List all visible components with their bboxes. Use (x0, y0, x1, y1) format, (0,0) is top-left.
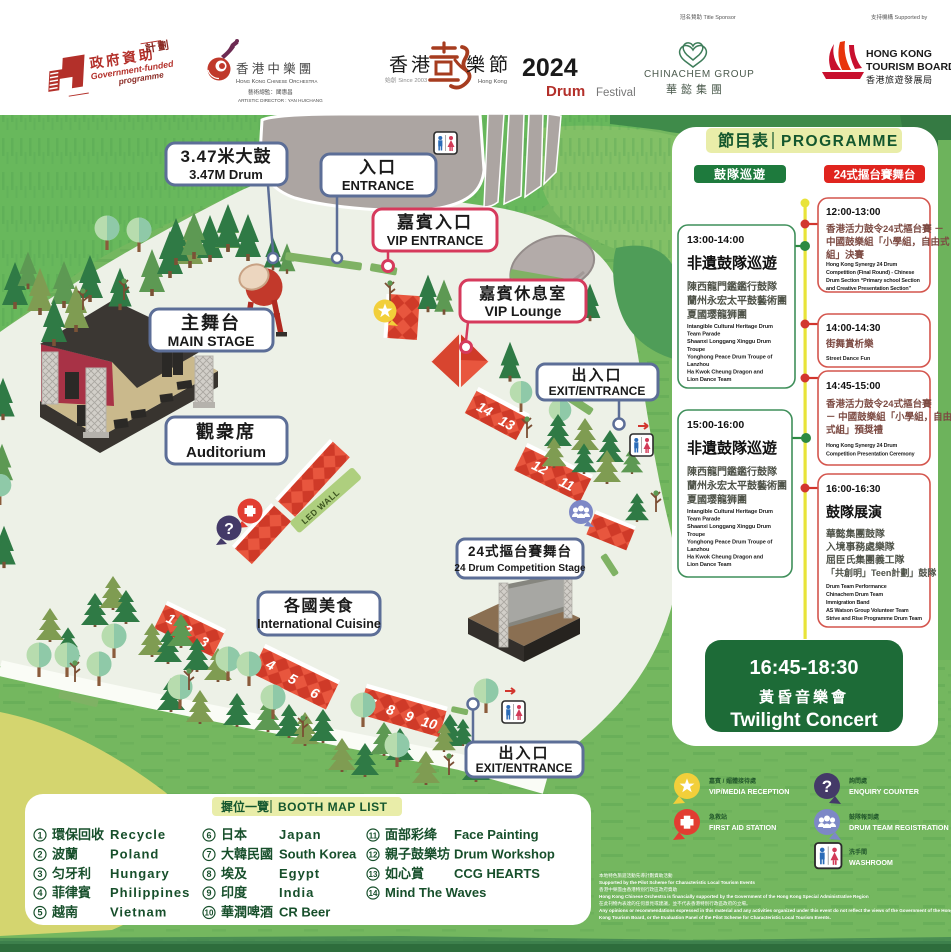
svg-text:24 Drum Competition Stage: 24 Drum Competition Stage (454, 563, 586, 574)
svg-text:Festival: Festival (596, 87, 636, 99)
svg-text:面部彩绛: 面部彩绛 (385, 827, 438, 842)
svg-text:Japan: Japan (279, 827, 322, 842)
svg-text:PROGRAMME: PROGRAMME (781, 133, 899, 150)
svg-text:Competition Presentation Cerem: Competition Presentation Ceremony (826, 452, 915, 458)
svg-text:匀牙利: 匀牙利 (52, 866, 91, 881)
svg-text:「共創明」Teen計劃」鼓隊: 「共創明」Teen計劃」鼓隊 (826, 567, 937, 578)
svg-text:華懿集團: 華懿集團 (666, 82, 726, 96)
svg-text:16:45-18:30: 16:45-18:30 (750, 657, 859, 679)
svg-text:2: 2 (37, 850, 42, 860)
svg-text:出入口: 出入口 (498, 744, 549, 762)
svg-text:洗手間: 洗手間 (849, 848, 867, 856)
svg-text:Drum: Drum (546, 83, 585, 100)
svg-text:TOURISM BOARD: TOURISM BOARD (866, 61, 951, 73)
svg-text:嘉賓 / 媚體接待處: 嘉賓 / 媚體接待處 (708, 777, 756, 785)
svg-text:Lanzhou: Lanzhou (687, 362, 710, 368)
svg-text:VIP Lounge: VIP Lounge (485, 303, 562, 319)
svg-text:3.47M Drum: 3.47M Drum (189, 167, 263, 182)
svg-text:14:00-14:30: 14:00-14:30 (826, 323, 881, 334)
svg-text:Ha Kwok Cheung Dragon and: Ha Kwok Cheung Dragon and (687, 370, 764, 376)
svg-text:Twilight Concert: Twilight Concert (730, 710, 878, 731)
svg-text:VIP ENTRANCE: VIP ENTRANCE (387, 233, 484, 248)
svg-text:本地特色旅遊活動先導計劃資助活動: 本地特色旅遊活動先導計劃資助活動 (599, 872, 673, 879)
svg-text:Drum Workshop: Drum Workshop (454, 847, 555, 862)
svg-text:Team Parade: Team Parade (687, 332, 720, 338)
svg-text:3: 3 (37, 869, 42, 879)
svg-text:15:00-16:00: 15:00-16:00 (687, 419, 744, 431)
svg-text:香港活力鼓令24式摳台賽 －: 香港活力鼓令24式摳台賽 － (825, 223, 944, 235)
svg-text:樂節: 樂節 (466, 54, 512, 76)
svg-text:Yonghong Peace Drum Troupe of: Yonghong Peace Drum Troupe of (687, 539, 772, 545)
svg-text:?: ? (224, 521, 234, 538)
svg-text:大韓民國: 大韓民國 (221, 847, 273, 862)
svg-text:Any opinions or recommendation: Any opinions or recommendations expresse… (599, 908, 951, 913)
svg-text:香港旅遊發展局: 香港旅遊發展局 (866, 74, 933, 85)
svg-text:－ 中國鼓樂組「小學組，自由: － 中國鼓樂組「小學組，自由 (826, 411, 951, 423)
svg-text:環保回收: 環保回收 (52, 827, 105, 842)
svg-text:Lion Dance Team: Lion Dance Team (687, 562, 732, 568)
svg-text:入境事務處樂隊: 入境事務處樂隊 (825, 540, 895, 553)
svg-text:Drum Section “Primary school S: Drum Section “Primary school Section (826, 278, 920, 284)
svg-text:非遺鼓隊巡遊: 非遺鼓隊巡遊 (687, 254, 777, 272)
svg-text:Recycle: Recycle (110, 827, 166, 842)
svg-text:Lion Dance Team: Lion Dance Team (687, 377, 732, 383)
svg-text:13:00-14:00: 13:00-14:00 (687, 234, 744, 246)
svg-text:在此刊物內表達的任何意見或建議，並不代表香港特別行政區政府的: 在此刊物內表達的任何意見或建議，並不代表香港特別行政區政府的立場。 (599, 900, 751, 907)
svg-text:14:45-15:00: 14:45-15:00 (826, 381, 881, 392)
svg-text:入口: 入口 (359, 158, 397, 177)
svg-text:VIP/MEDIA RECEPTION: VIP/MEDIA RECEPTION (709, 787, 789, 796)
svg-text:CCG HEARTS: CCG HEARTS (454, 866, 540, 881)
svg-text:陳西龍門鑑鑑行鼓隊: 陳西龍門鑑鑑行鼓隊 (687, 280, 778, 293)
svg-text:急救站: 急救站 (709, 813, 727, 821)
svg-text:?: ? (822, 777, 832, 796)
svg-text:Shaanxi Longgang Xinggu Drum: Shaanxi Longgang Xinggu Drum (687, 524, 771, 530)
svg-text:BOOTH MAP LIST: BOOTH MAP LIST (278, 800, 388, 814)
svg-text:Hong Kong Chinese Orchestra is: Hong Kong Chinese Orchestra is financial… (599, 894, 869, 899)
svg-text:WASHROOM: WASHROOM (849, 858, 893, 867)
svg-text:Team Parade: Team Parade (687, 517, 720, 523)
svg-text:12:00-13:00: 12:00-13:00 (826, 207, 881, 218)
svg-text:ARTISTIC DIRECTOR : YAN HUICHA: ARTISTIC DIRECTOR : YAN HUICHANG (238, 98, 323, 103)
svg-text:始創 Since 2003: 始創 Since 2003 (385, 76, 427, 84)
svg-text:14: 14 (369, 889, 378, 898)
svg-text:EXIT/ENTRANCE: EXIT/ENTRANCE (476, 761, 573, 775)
svg-text:Drum Team Performance: Drum Team Performance (826, 584, 887, 590)
svg-text:藝術總監：閶惠昌: 藝術總監：閶惠昌 (248, 88, 293, 96)
svg-text:Intangible Cultural Heritage D: Intangible Cultural Heritage Drum (687, 509, 773, 515)
svg-text:11: 11 (369, 832, 378, 841)
svg-text:如心賞: 如心賞 (385, 866, 424, 881)
svg-text:香港中樂團: 香港中樂團 (236, 61, 315, 76)
svg-text:Shaanxi Longgang Xinggu Drum: Shaanxi Longgang Xinggu Drum (687, 339, 771, 345)
svg-text:Kong Tourism Board, or the Eva: Kong Tourism Board, or the Evaluation Pa… (599, 915, 831, 920)
svg-text:2024: 2024 (522, 54, 578, 82)
svg-text:24式摳台賽舞台: 24式摳台賽舞台 (468, 543, 572, 559)
svg-text:4: 4 (37, 888, 42, 898)
svg-text:蘭州永宏太平鼓藝術團: 蘭州永宏太平鼓藝術團 (687, 479, 787, 492)
svg-text:ENQUIRY COUNTER: ENQUIRY COUNTER (849, 787, 920, 796)
svg-text:香港: 香港 (389, 54, 433, 76)
svg-text:Chinachem Drum Team: Chinachem Drum Team (826, 592, 883, 598)
svg-text:Lanzhou: Lanzhou (687, 547, 710, 553)
svg-text:各國美食: 各國美食 (283, 596, 354, 615)
svg-text:節目表: 節目表 (717, 131, 769, 150)
svg-text:3.47米大鼓: 3.47米大鼓 (180, 146, 271, 166)
svg-text:出入口: 出入口 (571, 366, 622, 384)
svg-text:Philippines: Philippines (110, 885, 190, 900)
svg-text:印度: 印度 (221, 885, 248, 900)
svg-text:DRUM TEAM REGISTRATION: DRUM TEAM REGISTRATION (849, 823, 949, 832)
svg-text:華懿集團鼓隊: 華懿集團鼓隊 (826, 527, 885, 540)
svg-text:Hong Kong: Hong Kong (478, 79, 507, 85)
svg-text:Troupe: Troupe (687, 532, 705, 538)
svg-text:FIRST AID STATION: FIRST AID STATION (709, 823, 776, 832)
svg-text:MAIN STAGE: MAIN STAGE (168, 333, 255, 349)
svg-text:鼓隊報到處: 鼓隊報到處 (849, 813, 879, 821)
svg-text:香港中樂團由香港特別行政區政府資助: 香港中樂團由香港特別行政區政府資助 (599, 886, 678, 893)
svg-text:屈臣氏集團義工隊: 屈臣氏集團義工隊 (826, 553, 905, 566)
svg-text:International Cuisine: International Cuisine (257, 617, 381, 631)
svg-text:主舞台: 主舞台 (181, 312, 241, 333)
svg-text:CR Beer: CR Beer (279, 905, 330, 920)
svg-text:菲律賓: 菲律賓 (52, 885, 91, 900)
svg-text:親子鼓樂坊: 親子鼓樂坊 (385, 847, 450, 862)
svg-text:Strive and Rise Programme Drum: Strive and Rise Programme Drum Team (826, 616, 922, 622)
svg-text:埃及: 埃及 (221, 866, 248, 881)
svg-text:Egypt: Egypt (279, 866, 320, 881)
svg-text:冠名賛助 Title Sponsor: 冠名賛助 Title Sponsor (680, 13, 736, 21)
svg-text:7: 7 (206, 850, 211, 860)
svg-text:HONG KONG: HONG KONG (866, 48, 932, 60)
svg-text:Hong Kong Synergy 24 Drum: Hong Kong Synergy 24 Drum (826, 262, 897, 268)
svg-text:16:00-16:30: 16:00-16:30 (826, 484, 881, 495)
svg-text:Yonghong Peace Drum Troupe of: Yonghong Peace Drum Troupe of (687, 354, 772, 360)
svg-text:Immigration Band: Immigration Band (826, 600, 869, 606)
svg-text:街舞賞析樂: 街舞賞析樂 (825, 338, 874, 350)
svg-text:中國鼓樂組「小學組，自由式: 中國鼓樂組「小學組，自由式 (826, 236, 950, 248)
svg-text:10: 10 (205, 909, 214, 918)
svg-text:Poland: Poland (110, 847, 159, 862)
svg-text:ENTRANCE: ENTRANCE (342, 178, 415, 193)
svg-text:1: 1 (37, 831, 42, 841)
svg-text:式組」預奨禮: 式組」預奨禮 (826, 424, 884, 436)
svg-text:Intangible Cultural Heritage D: Intangible Cultural Heritage Drum (687, 324, 773, 330)
svg-text:嘉賓休息室: 嘉賓休息室 (478, 284, 567, 303)
svg-text:6: 6 (206, 831, 211, 841)
svg-text:夏國璎龍狮團: 夏國璎龍狮團 (686, 308, 747, 321)
svg-text:觀衆席: 觀衆席 (196, 421, 256, 442)
svg-text:Troupe: Troupe (687, 347, 705, 353)
svg-text:支持機構 Supported by: 支持機構 Supported by (871, 13, 927, 21)
svg-text:Hungary: Hungary (110, 866, 170, 881)
svg-text:蘭州永宏太平鼓藝術團: 蘭州永宏太平鼓藝術團 (687, 294, 787, 307)
svg-text:CHINACHEM GROUP: CHINACHEM GROUP (644, 69, 755, 80)
svg-text:24式摳台賽舞台: 24式摳台賽舞台 (834, 168, 916, 182)
svg-text:8: 8 (206, 869, 211, 879)
svg-text:日本: 日本 (221, 827, 247, 842)
svg-text:South Korea: South Korea (279, 847, 357, 862)
svg-text:波蘭: 波蘭 (52, 847, 78, 862)
svg-text:香港活力鼓令24式摳台賽: 香港活力鼓令24式摳台賽 (825, 398, 932, 410)
svg-text:夏國璎龍狮團: 夏國璎龍狮團 (686, 493, 747, 506)
svg-text:and Creative Presentation Sect: and Creative Presentation Section” (826, 286, 912, 292)
svg-text:非遺鼓隊巡遊: 非遺鼓隊巡遊 (687, 439, 777, 457)
svg-text:嘉賓入口: 嘉賓入口 (396, 212, 473, 232)
svg-text:黃昏音樂會: 黃昏音樂會 (759, 688, 849, 706)
svg-text:Street Dance Fun: Street Dance Fun (826, 356, 870, 362)
svg-text:AS Watson Group Volunteer Team: AS Watson Group Volunteer Team (826, 608, 909, 614)
svg-text:鼓隊展演: 鼓隊展演 (826, 504, 882, 520)
svg-text:13: 13 (369, 870, 378, 879)
svg-text:Supported by the Pilot Scheme: Supported by the Pilot Scheme for Charac… (599, 880, 755, 885)
svg-text:摨位一覽: 摨位一覽 (221, 799, 269, 814)
svg-text:Mind The Waves: Mind The Waves (385, 885, 486, 900)
svg-text:鼓隊巡遊: 鼓隊巡遊 (714, 167, 766, 182)
svg-text:詢問處: 詢問處 (849, 777, 867, 785)
svg-text:India: India (279, 885, 314, 900)
svg-text:越南: 越南 (51, 905, 78, 920)
svg-text:EXIT/ENTRANCE: EXIT/ENTRANCE (549, 384, 646, 398)
svg-text:陳西龍門鑑鑑行鼓隊: 陳西龍門鑑鑑行鼓隊 (687, 465, 778, 478)
svg-text:5: 5 (37, 908, 42, 918)
svg-text:Hong Kong Synergy 24 Drum: Hong Kong Synergy 24 Drum (826, 443, 897, 449)
svg-text:Auditorium: Auditorium (186, 444, 266, 461)
svg-text:Face Painting: Face Painting (454, 827, 539, 842)
svg-text:Competition (Final Round) - C: Competition (Final Round) - Chinese (826, 270, 914, 276)
svg-text:12: 12 (369, 851, 378, 860)
svg-text:華潤啤酒: 華潤啤酒 (221, 905, 273, 920)
svg-text:9: 9 (206, 888, 211, 898)
svg-text:組」決賽: 組」決賽 (826, 249, 865, 261)
svg-text:Ha Kwok Cheung Dragon and: Ha Kwok Cheung Dragon and (687, 555, 764, 561)
svg-text:Vietnam: Vietnam (110, 905, 167, 920)
